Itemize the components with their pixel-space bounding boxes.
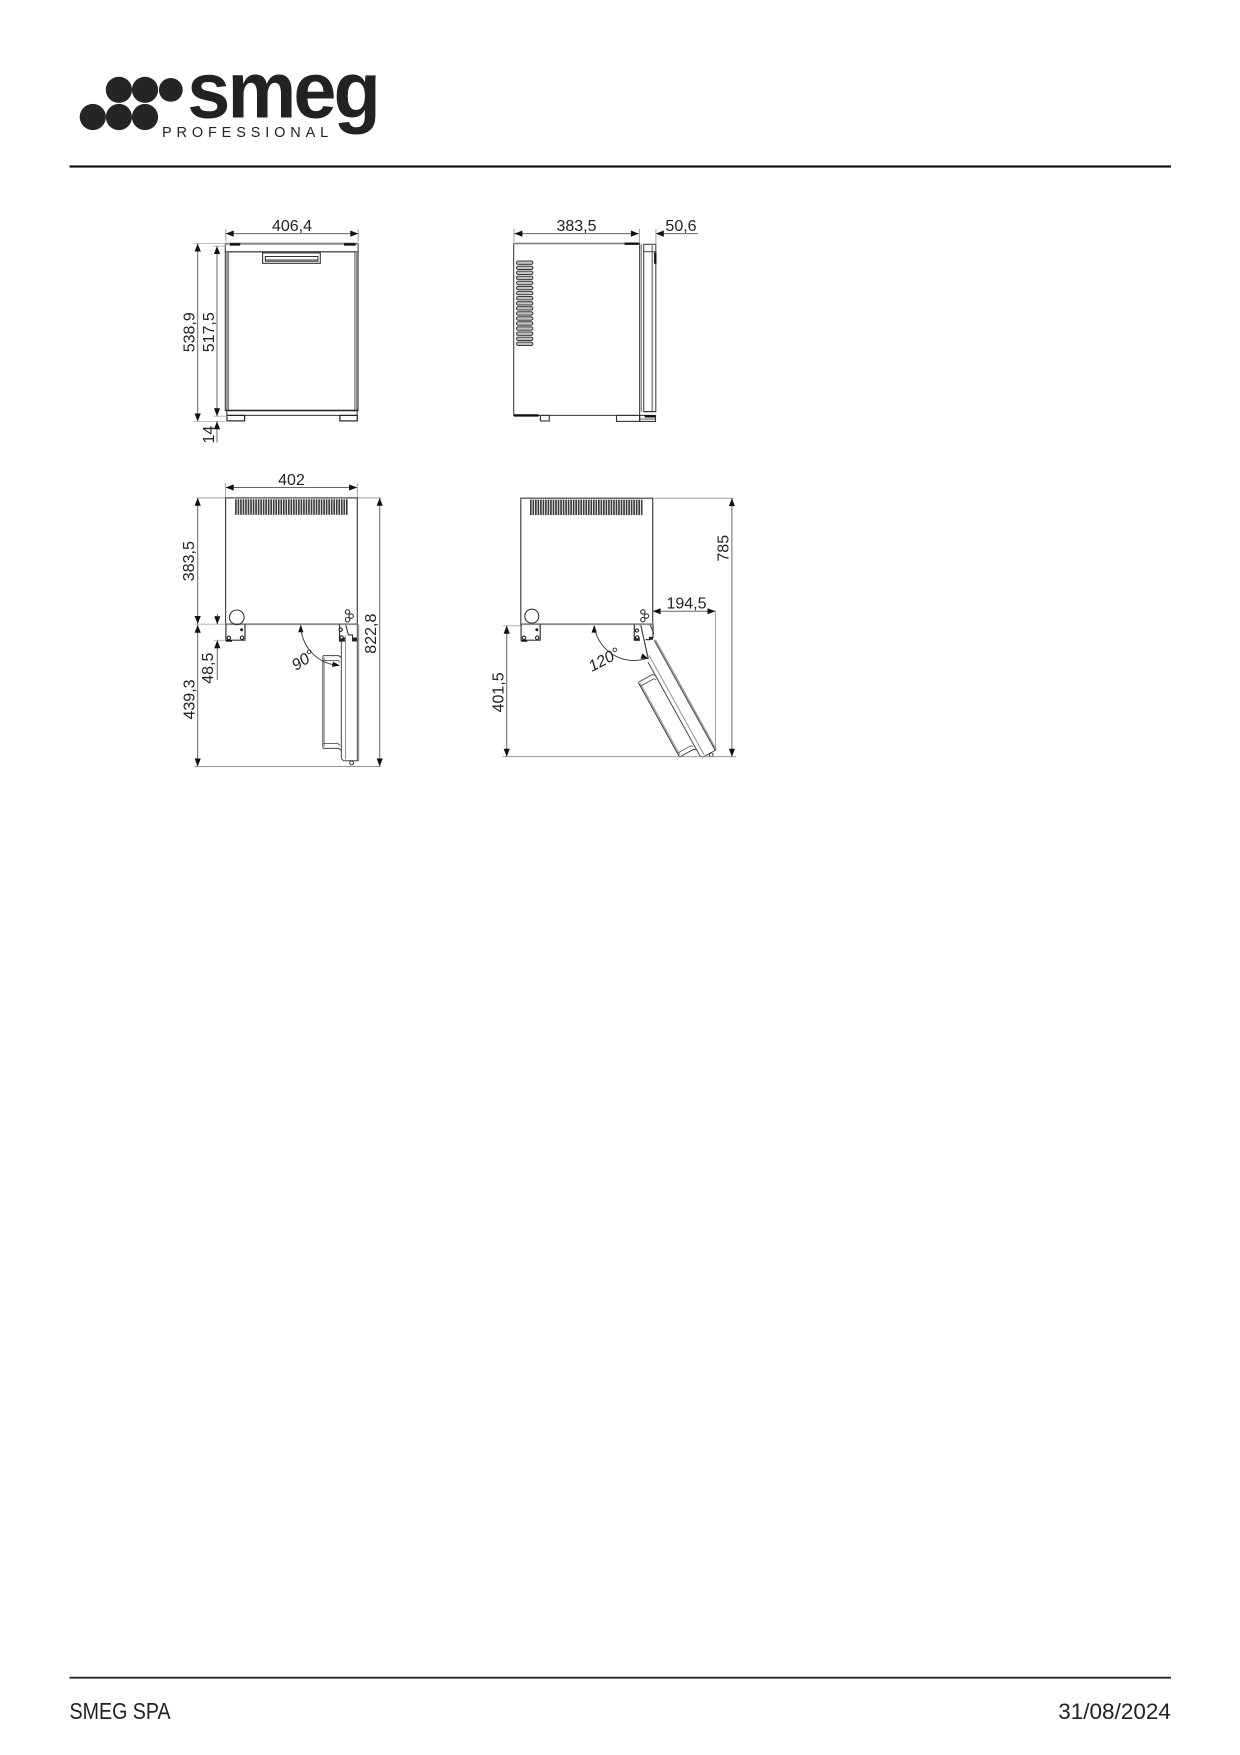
svg-text:14: 14 [201,426,218,444]
svg-text:517,5: 517,5 [201,312,218,352]
svg-text:401,5: 401,5 [490,672,507,712]
svg-text:406,4: 406,4 [272,218,312,235]
svg-text:50,6: 50,6 [665,218,696,235]
svg-text:383,5: 383,5 [556,218,596,235]
svg-text:PROFESSIONAL: PROFESSIONAL [162,125,333,141]
svg-text:smeg: smeg [187,45,378,134]
svg-text:31/08/2024: 31/08/2024 [1058,1699,1171,1724]
svg-text:785: 785 [715,535,732,562]
svg-text:194,5: 194,5 [666,595,706,612]
svg-text:402: 402 [278,472,305,489]
svg-text:48,5: 48,5 [200,653,217,684]
svg-text:SMEG SPA: SMEG SPA [70,1699,172,1725]
svg-text:439,3: 439,3 [182,679,199,719]
svg-text:822,8: 822,8 [363,614,380,654]
svg-text:538,9: 538,9 [181,312,198,352]
svg-text:383,5: 383,5 [181,541,198,581]
